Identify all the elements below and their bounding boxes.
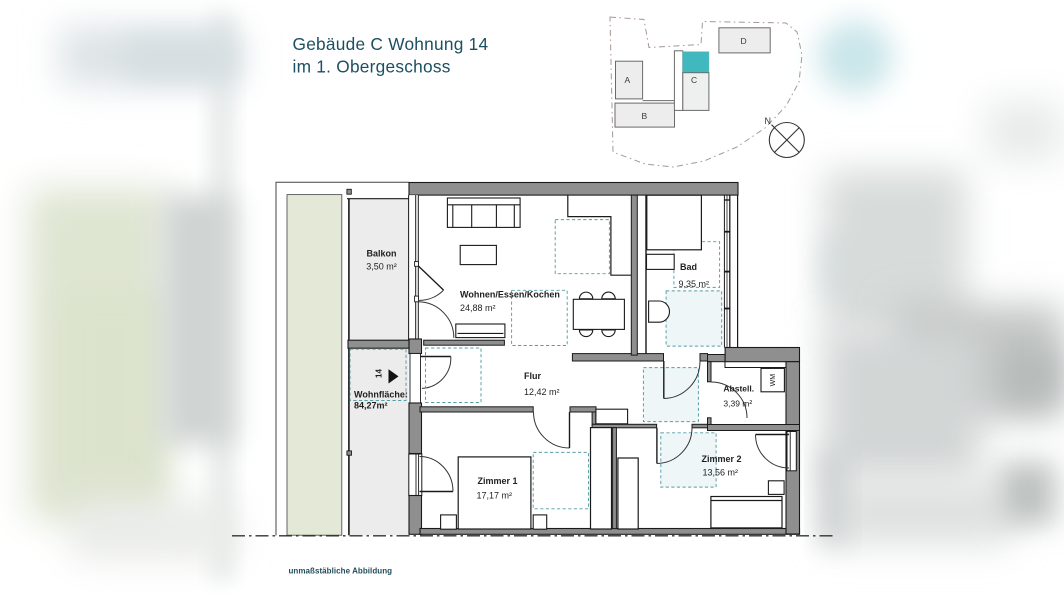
svg-text:im 1. Obergeschoss: im 1. Obergeschoss	[293, 56, 451, 76]
svg-text:Zimmer 1: Zimmer 1	[478, 476, 518, 486]
svg-text:3,39 m²: 3,39 m²	[723, 399, 752, 409]
svg-text:Zimmer 2: Zimmer 2	[702, 454, 742, 464]
svg-text:Wohnfläche:: Wohnfläche:	[354, 390, 408, 400]
svg-text:Gebäude C Wohnung 14: Gebäude C Wohnung 14	[293, 34, 489, 54]
svg-text:WM: WM	[770, 374, 777, 387]
svg-text:Bad: Bad	[680, 262, 697, 272]
svg-text:B: B	[642, 111, 648, 121]
svg-text:A: A	[625, 75, 631, 85]
svg-text:17,17 m²: 17,17 m²	[477, 491, 513, 501]
svg-text:14: 14	[375, 369, 384, 378]
svg-text:C: C	[691, 75, 697, 85]
svg-text:9,35 m²: 9,35 m²	[679, 279, 710, 289]
svg-text:24,88 m²: 24,88 m²	[460, 303, 496, 313]
svg-text:Abstell.: Abstell.	[723, 384, 754, 394]
svg-text:Wohnen/Essen/Kochen: Wohnen/Essen/Kochen	[460, 290, 560, 300]
svg-text:3,50 m²: 3,50 m²	[366, 261, 397, 271]
svg-text:unmaßstäbliche Abbildung: unmaßstäbliche Abbildung	[289, 566, 393, 575]
svg-text:13,56 m²: 13,56 m²	[703, 468, 739, 478]
svg-text:Flur: Flur	[524, 371, 541, 381]
svg-text:12,42 m²: 12,42 m²	[524, 387, 560, 397]
svg-text:N: N	[765, 116, 772, 126]
svg-text:D: D	[741, 36, 747, 46]
svg-text:Balkon: Balkon	[366, 249, 396, 259]
svg-text:84,27m²: 84,27m²	[354, 401, 388, 411]
